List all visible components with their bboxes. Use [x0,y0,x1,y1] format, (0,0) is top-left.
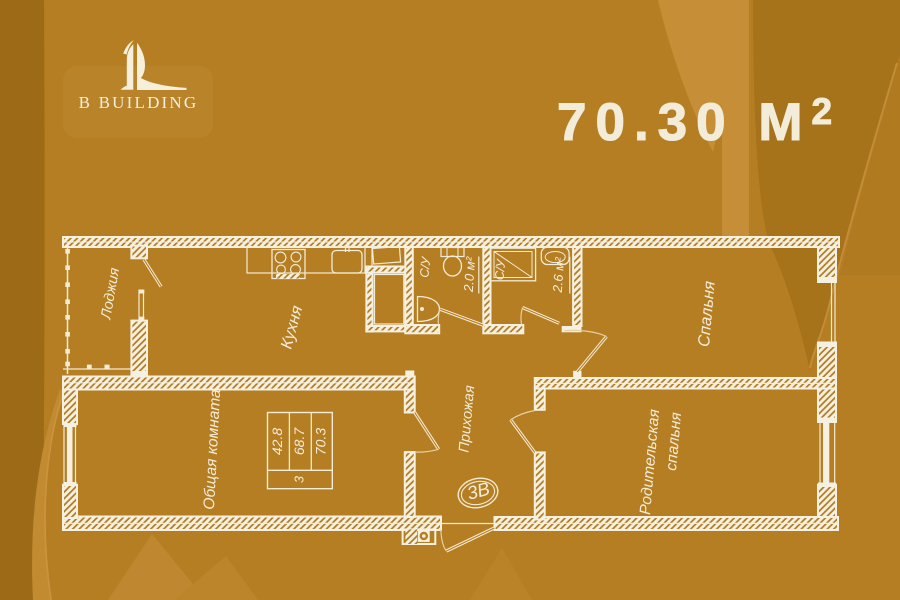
svg-text:B BUILDING: B BUILDING [79,93,199,112]
svg-text:70.3: 70.3 [313,428,329,455]
svg-text:3: 3 [292,476,306,483]
svg-text:С/У: С/У [417,255,433,279]
svg-text:С/У: С/У [492,257,508,281]
svg-text:70.30 М2: 70.30 М2 [557,91,841,152]
svg-text:2.6 м²: 2.6 м² [550,256,568,294]
svg-text:42.8: 42.8 [269,428,285,455]
svg-text:68.7: 68.7 [291,427,307,455]
svg-text:2.0 м²: 2.0 м² [461,256,479,294]
